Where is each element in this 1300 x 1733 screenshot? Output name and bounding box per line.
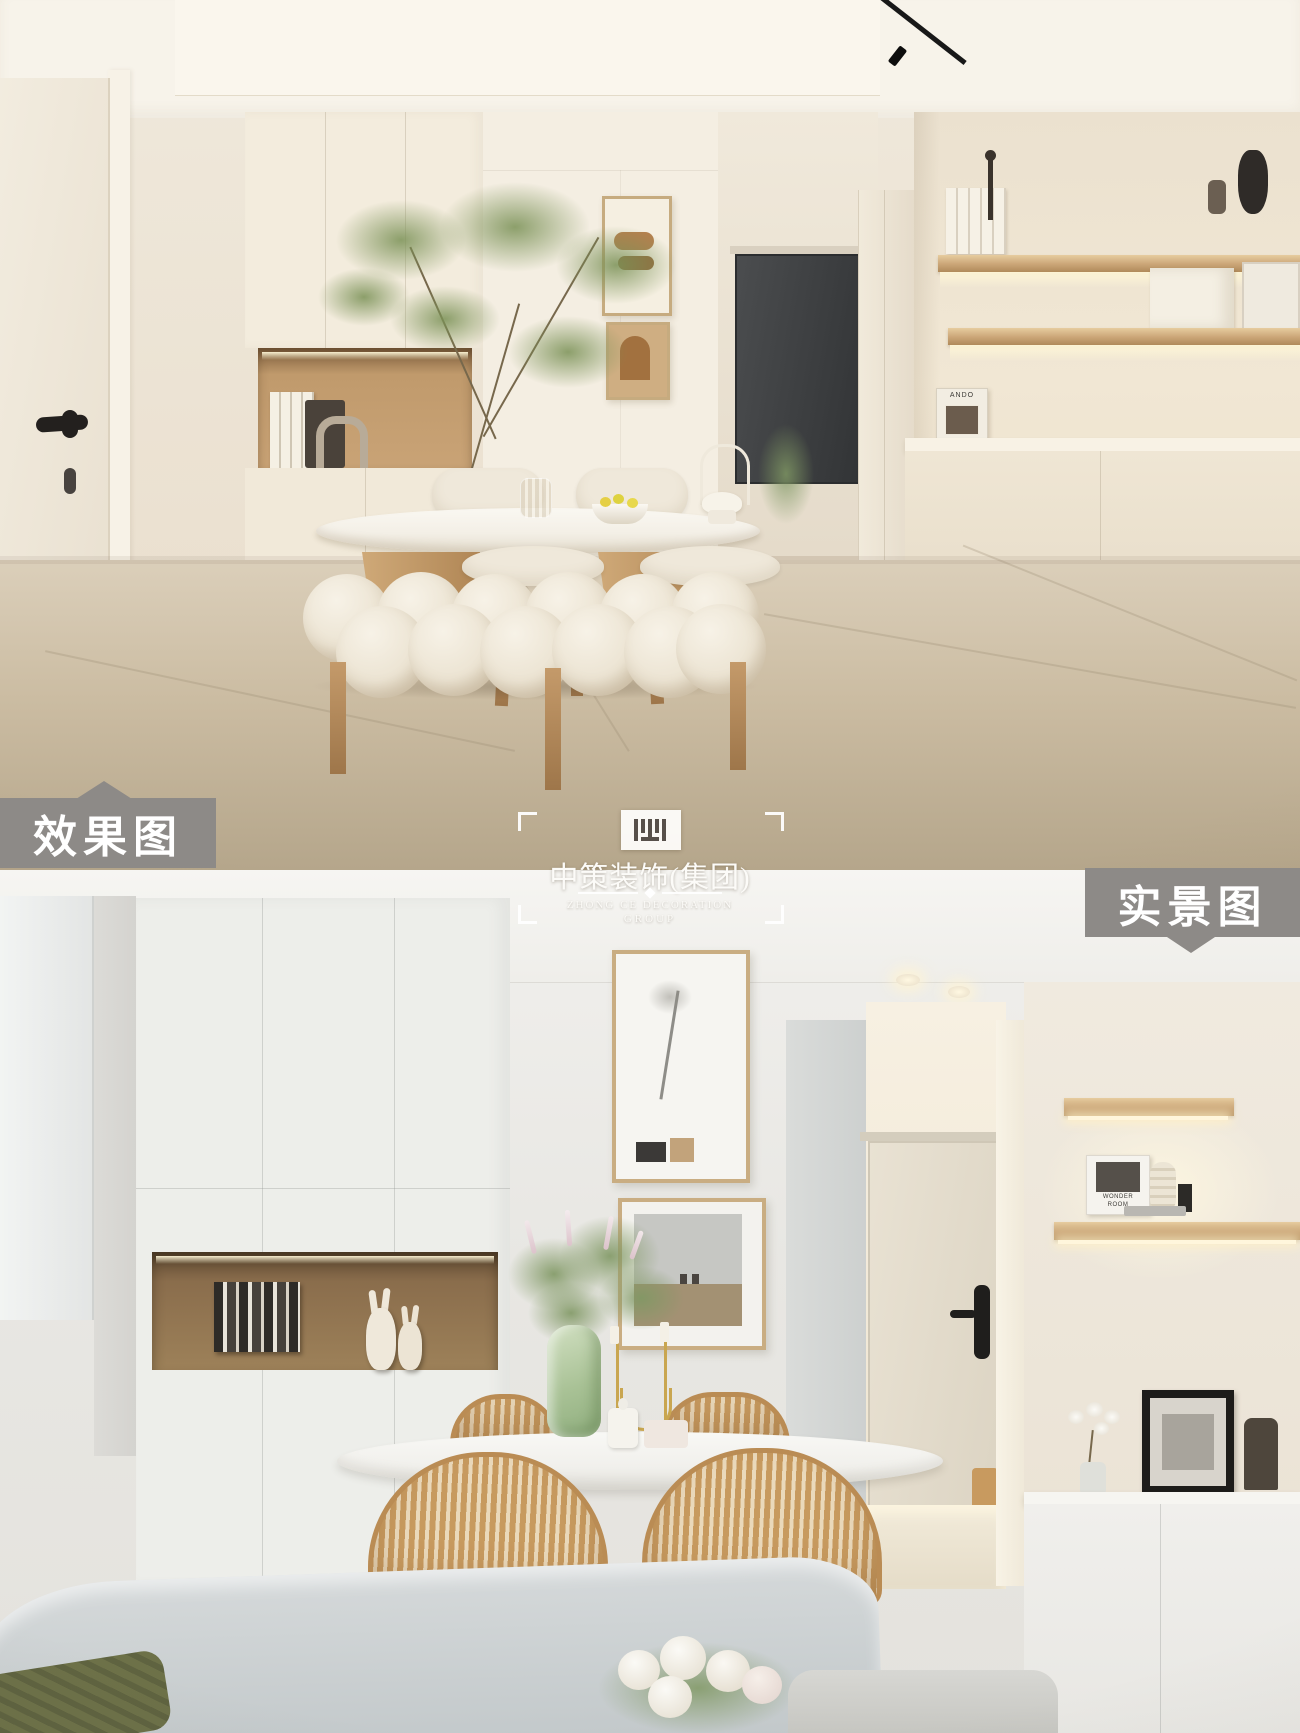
- real-photo-panel: WONDER ROOM: [0, 870, 1300, 1733]
- real-label: 实景图: [1085, 868, 1300, 937]
- comparison-image: ANDO: [0, 0, 1300, 1733]
- render-label: 效果图: [0, 798, 216, 868]
- render-label-text: 效果图: [33, 801, 183, 865]
- real-vignette: [0, 870, 1300, 1733]
- real-label-text: 实景图: [1118, 871, 1268, 935]
- render-photo-panel: ANDO: [0, 0, 1300, 870]
- render-label-pointer: [76, 781, 132, 799]
- real-label-pointer: [1167, 937, 1215, 953]
- render-vignette: [0, 0, 1300, 870]
